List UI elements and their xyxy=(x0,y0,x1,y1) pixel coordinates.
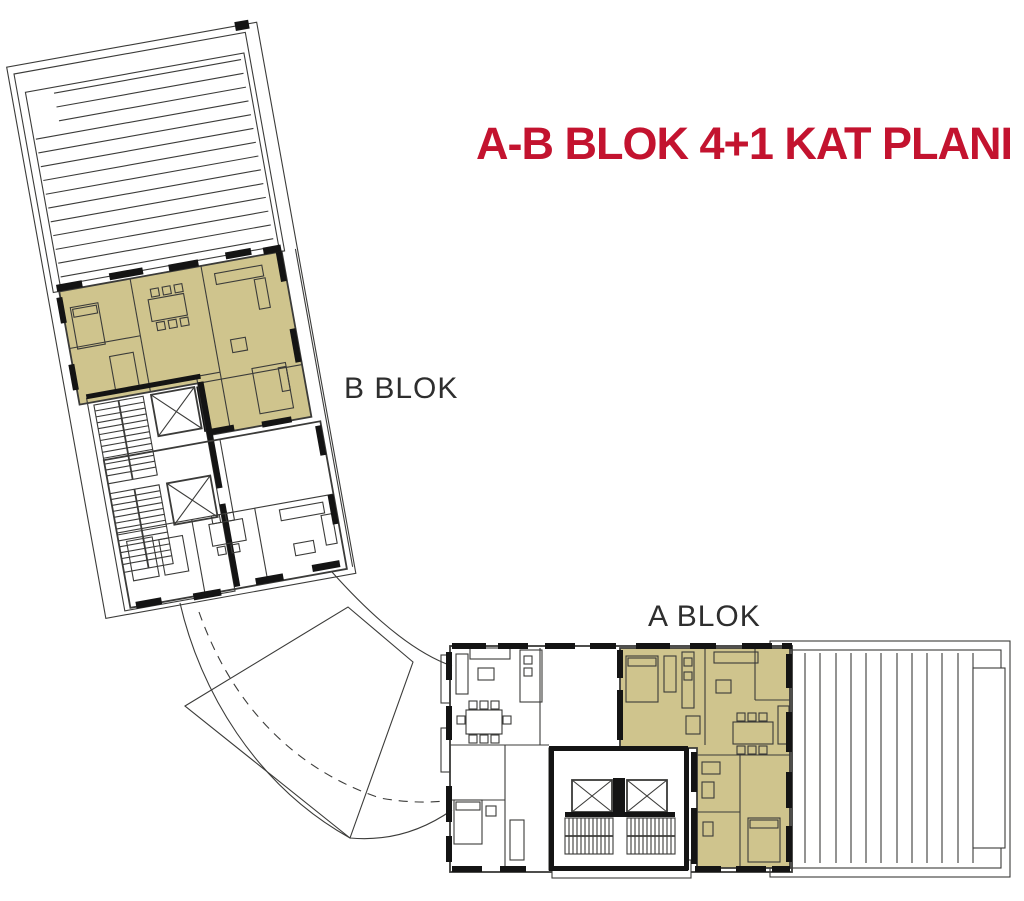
b-elevator-shaft-lower xyxy=(167,476,218,525)
b-elevator-shaft-upper xyxy=(151,387,202,436)
a-second-apartment-furniture xyxy=(454,648,542,860)
site-path-dashed xyxy=(199,612,452,802)
a-terrace xyxy=(770,641,1010,877)
site-connector xyxy=(180,572,452,839)
b-block-plan xyxy=(6,18,356,618)
b-second-apartment xyxy=(104,421,348,612)
b-highlighted-unit xyxy=(54,243,312,460)
page-title: A-B BLOK 4+1 KAT PLANI xyxy=(392,118,1012,170)
site-arc-outer xyxy=(180,603,452,839)
a-terrace-slats xyxy=(790,653,973,863)
b-terrace-corner-tick xyxy=(234,20,249,31)
site-arc-inner xyxy=(332,572,452,666)
a-core xyxy=(549,746,691,878)
b-terrace-slats xyxy=(28,60,273,277)
b-staircase-upper xyxy=(94,396,157,484)
a-terrace-notch xyxy=(973,668,1005,848)
a-block-plan xyxy=(441,641,1010,878)
b-block-label: B BLOK xyxy=(344,372,458,406)
a-block-label: A BLOK xyxy=(648,600,761,634)
a-second-apartment xyxy=(450,648,549,870)
floor-plan-sheet: A-B BLOK 4+1 KAT PLANI B BLOK A BLOK xyxy=(0,0,1024,901)
